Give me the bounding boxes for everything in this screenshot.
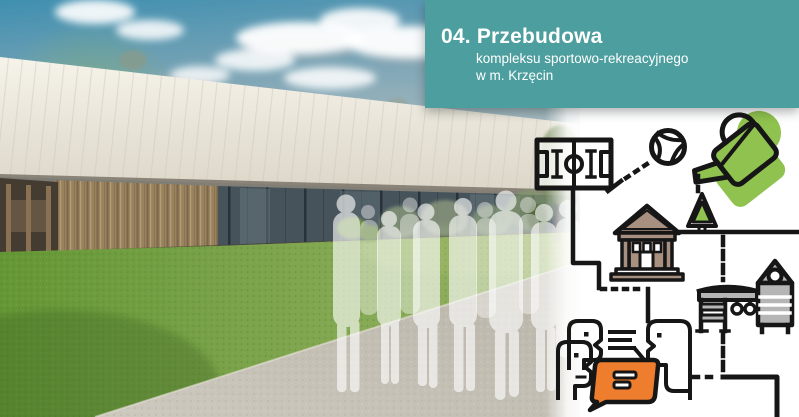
slide-subtitle: kompleksu sportowo-rekreacyjnego w m. Kr… — [476, 51, 789, 84]
title-banner: 04. Przebudowa kompleksu sportowo-rekrea… — [425, 0, 799, 108]
project-slide: 04. Przebudowa kompleksu sportowo-rekrea… — [0, 0, 799, 417]
people-talking-icon — [558, 321, 690, 410]
slide-title: 04. Przebudowa — [441, 26, 789, 48]
municipal-building-icon — [611, 206, 683, 280]
subtitle-line-1: kompleksu sportowo-rekreacyjnego — [476, 51, 688, 66]
soccer-field-icon — [537, 140, 611, 188]
tree-icon — [688, 194, 716, 232]
subtitle-line-2: w m. Krzęcin — [476, 68, 553, 83]
infographic-icons — [530, 108, 799, 417]
volleyball-icon — [652, 131, 685, 164]
speech-bubble-orange — [590, 360, 658, 410]
speech-lines — [610, 332, 646, 362]
playground-icon — [697, 261, 792, 332]
